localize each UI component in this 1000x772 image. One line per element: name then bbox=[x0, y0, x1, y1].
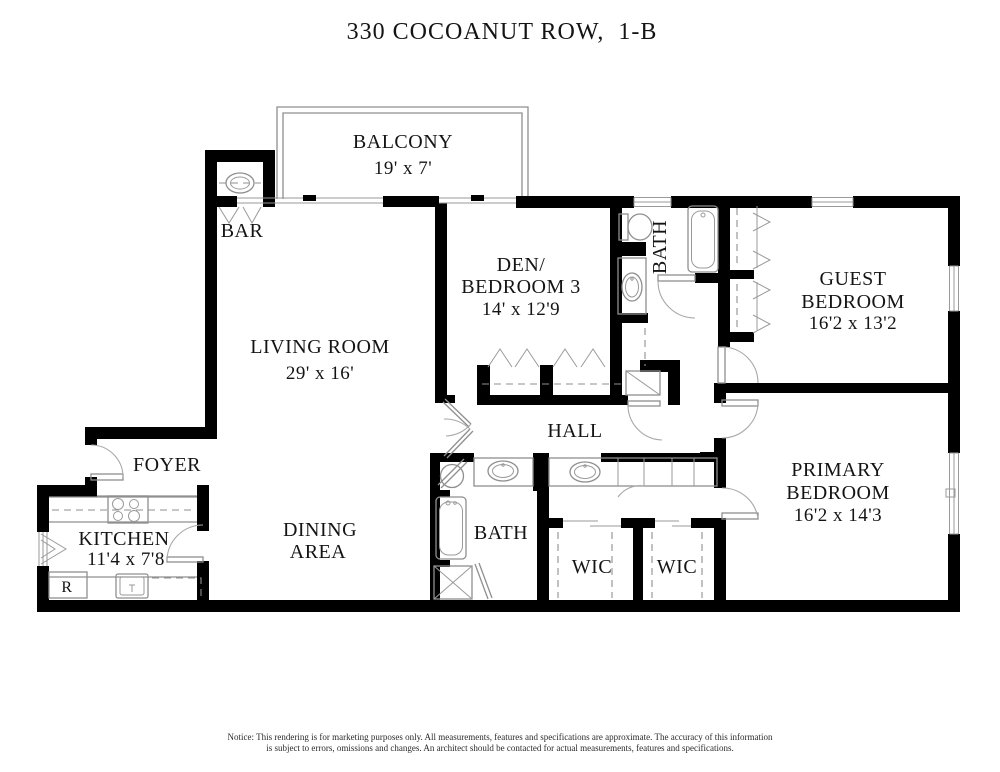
window-guest-right bbox=[950, 266, 959, 311]
guest-closet-doors bbox=[737, 206, 770, 333]
shower-door bbox=[475, 563, 492, 599]
living-room-dims: 29' x 16' bbox=[286, 363, 354, 384]
bar-label: BAR bbox=[221, 220, 264, 242]
den-dims: 14' x 12'9 bbox=[482, 299, 560, 320]
guest-bedroom-label-line1: GUEST bbox=[820, 268, 887, 290]
guest-bedroom-label-line2: BEDROOM bbox=[801, 291, 905, 313]
window-top-guest bbox=[812, 198, 853, 207]
primary-bedroom-door bbox=[722, 400, 758, 438]
kitchen-counter-stove bbox=[49, 496, 197, 523]
disclaimer-line2: is subject to errors, omissions and chan… bbox=[266, 743, 734, 753]
floor-plan-page: 330 COCOANUT ROW, 1-B BALCONY 19' x 7' B… bbox=[0, 0, 1000, 772]
foyer-label: FOYER bbox=[133, 454, 201, 476]
kitchen-dims: 11'4 x 7'8 bbox=[87, 549, 165, 570]
balcony-dims: 19' x 7' bbox=[374, 158, 432, 179]
balcony-label: BALCONY bbox=[353, 131, 453, 153]
bar-sink bbox=[219, 173, 261, 193]
den-label-line1: DEN/ bbox=[497, 254, 546, 276]
window-kitchen-left bbox=[39, 532, 66, 566]
wic-right-label: WIC bbox=[657, 556, 697, 578]
dishwasher bbox=[152, 578, 201, 598]
den-label-line2: BEDROOM 3 bbox=[461, 276, 581, 298]
floor-plan-drawing: 330 COCOANUT ROW, 1-B BALCONY 19' x 7' B… bbox=[0, 0, 1000, 772]
dining-label-line1: DINING bbox=[283, 519, 357, 541]
balcony-slider-doors bbox=[237, 195, 516, 203]
guest-bath-toilet bbox=[619, 214, 652, 240]
den-door bbox=[443, 399, 471, 436]
refrigerator-label: R bbox=[61, 579, 72, 596]
guest-bath-vanity-sink bbox=[618, 258, 646, 314]
entry-door bbox=[91, 445, 123, 480]
balcony-rails bbox=[277, 107, 528, 199]
guest-bedroom-dims: 16'2 x 13'2 bbox=[809, 313, 897, 334]
primary-corridor-door bbox=[722, 488, 758, 519]
primary-bath-tub bbox=[436, 497, 466, 559]
dining-label-line2: AREA bbox=[290, 541, 347, 563]
primary-bath-label: BATH bbox=[474, 522, 528, 544]
primary-bedroom-label-line1: PRIMARY bbox=[791, 459, 885, 481]
window-primary-right bbox=[946, 453, 959, 534]
plan-title: 330 COCOANUT ROW, 1-B bbox=[347, 19, 658, 45]
living-room-label: LIVING ROOM bbox=[250, 336, 389, 358]
hall-vanity-left bbox=[474, 458, 533, 486]
guest-bath-label: BATH bbox=[649, 220, 671, 274]
guest-bath-tub bbox=[688, 206, 718, 272]
den-closet-bifold-doors bbox=[482, 349, 625, 384]
kitchen-label: KITCHEN bbox=[78, 528, 169, 550]
primary-bedroom-label-line2: BEDROOM bbox=[786, 482, 890, 504]
window-top-bath bbox=[634, 198, 671, 207]
utility-closet-door bbox=[628, 401, 662, 440]
primary-bath-corner-toilet bbox=[438, 459, 467, 488]
primary-bath-door bbox=[444, 419, 473, 458]
hall-label: HALL bbox=[547, 420, 602, 442]
disclaimer-line1: Notice: This rendering is for marketing … bbox=[228, 732, 773, 742]
disclaimer: Notice: This rendering is for marketing … bbox=[228, 732, 773, 753]
primary-bedroom-dims: 16'2 x 14'3 bbox=[794, 505, 882, 526]
guest-bedroom-door bbox=[718, 347, 758, 383]
hall-vanity-right bbox=[549, 458, 717, 497]
guest-bath-door bbox=[658, 275, 695, 318]
wic-left-label: WIC bbox=[572, 556, 612, 578]
